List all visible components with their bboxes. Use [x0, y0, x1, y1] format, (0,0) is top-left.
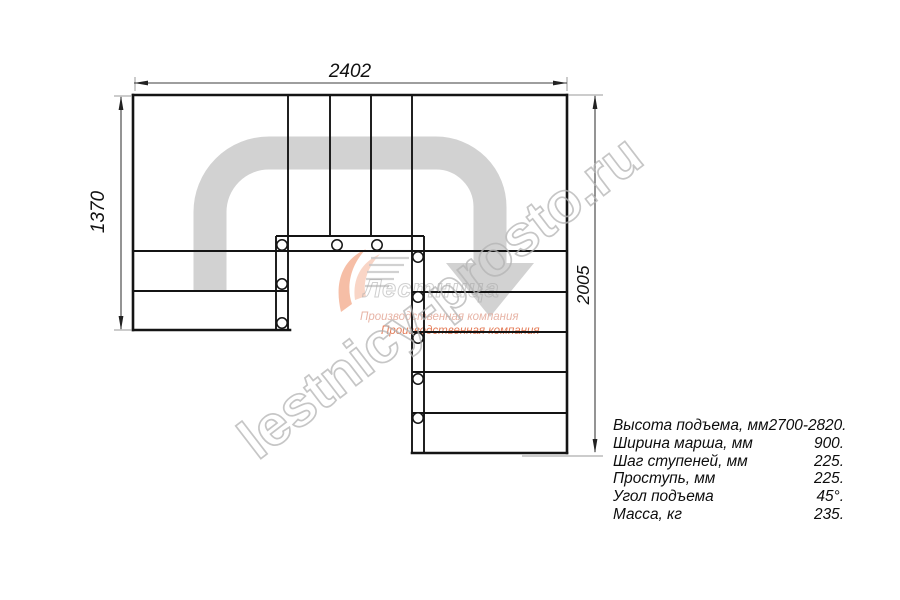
bolt-hole [277, 240, 287, 250]
bolt-hole [413, 374, 423, 384]
spec-list: Высота подъема, мм 2700-2820. Ширина мар… [613, 417, 844, 524]
staircase-drawing-page: Лестница Производственная компания Произ… [0, 0, 900, 600]
bolt-hole [413, 252, 423, 262]
bolt-hole [332, 240, 342, 250]
spec-label: Шаг ступеней, мм [613, 453, 748, 471]
spec-value: 2700-2820. [769, 417, 847, 435]
spec-label: Масса, кг [613, 506, 682, 524]
spec-row-mass: Масса, кг 235. [613, 506, 844, 524]
spec-label: Угол подъема [613, 488, 714, 506]
spec-value: 235. [814, 506, 844, 524]
dim-value-left-depth: 1370 [88, 190, 109, 233]
spec-row-height: Высота подъема, мм 2700-2820. [613, 417, 844, 435]
spec-value: 900. [814, 435, 844, 453]
bolt-hole [277, 318, 287, 328]
spec-value: 45°. [816, 488, 844, 506]
bolt-hole [413, 413, 423, 423]
bolt-hole [372, 240, 382, 250]
bolt-hole [277, 279, 287, 289]
dim-value-right-depth: 2005 [573, 265, 593, 305]
dim-value-top-width: 2402 [328, 61, 372, 82]
spec-row-flight-width: Ширина марша, мм 900. [613, 435, 844, 453]
spec-row-angle: Угол подъема 45°. [613, 488, 844, 506]
spec-value: 225. [814, 470, 844, 488]
spec-row-step-pitch: Шаг ступеней, мм 225. [613, 453, 844, 471]
spec-value: 225. [814, 453, 844, 471]
spec-label: Высота подъема, мм [613, 417, 769, 435]
spec-label: Ширина марша, мм [613, 435, 753, 453]
spec-label: Проступь, мм [613, 470, 715, 488]
spec-row-tread: Проступь, мм 225. [613, 470, 844, 488]
